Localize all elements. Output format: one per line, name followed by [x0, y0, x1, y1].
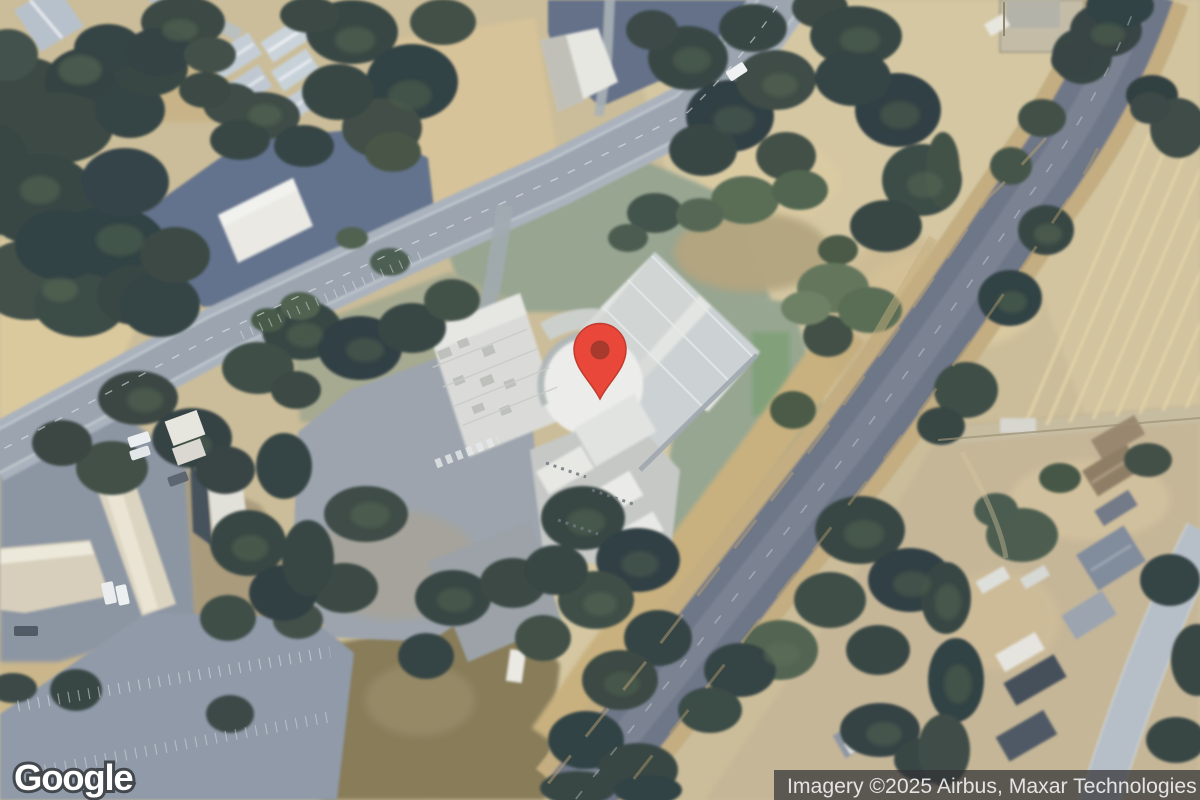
svg-text:Imagery ©2025 Airbus, Maxar Te: Imagery ©2025 Airbus, Maxar Technologies [787, 775, 1197, 798]
svg-text:Google: Google [14, 757, 133, 798]
